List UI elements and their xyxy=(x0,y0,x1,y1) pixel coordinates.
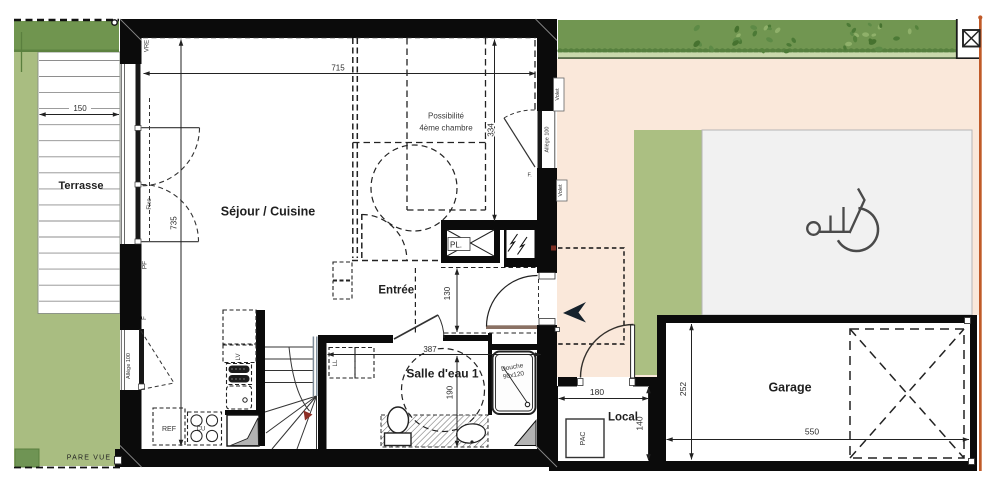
svg-text:Volet: Volet xyxy=(558,184,564,197)
svg-text:Allège 100: Allège 100 xyxy=(545,127,551,153)
svg-text:334: 334 xyxy=(487,123,496,137)
svg-text:Terrasse: Terrasse xyxy=(58,180,103,192)
svg-text:150: 150 xyxy=(73,104,87,113)
svg-text:Entrée: Entrée xyxy=(378,285,414,297)
svg-text:LL: LL xyxy=(333,359,339,366)
svg-text:550: 550 xyxy=(805,427,819,437)
svg-text:Fixe: Fixe xyxy=(147,198,153,210)
svg-text:CU: CU xyxy=(197,427,206,433)
svg-text:Garage: Garage xyxy=(768,381,811,395)
svg-text:Local: Local xyxy=(608,412,638,424)
svg-text:715: 715 xyxy=(331,64,345,73)
svg-text:Possibilité: Possibilité xyxy=(428,112,465,121)
svg-text:F.: F. xyxy=(528,173,533,179)
svg-text:LV: LV xyxy=(236,354,242,361)
svg-text:Volet: Volet xyxy=(555,88,561,101)
svg-text:387: 387 xyxy=(423,345,437,354)
svg-text:PAC: PAC xyxy=(580,432,587,446)
svg-text:735: 735 xyxy=(170,216,179,230)
svg-text:PL.: PL. xyxy=(450,241,462,250)
svg-text:PF: PF xyxy=(142,261,149,269)
svg-text:190: 190 xyxy=(446,385,455,399)
svg-text:252: 252 xyxy=(678,382,688,396)
svg-text:Allège 100: Allège 100 xyxy=(126,353,132,379)
svg-text:VRE: VRE xyxy=(145,40,151,52)
svg-text:Salle d'eau 1: Salle d'eau 1 xyxy=(406,367,479,381)
svg-text:Séjour / Cuisine: Séjour / Cuisine xyxy=(221,205,316,219)
svg-text:130: 130 xyxy=(443,286,452,300)
svg-text:REF: REF xyxy=(162,426,176,433)
svg-text:4ème chambre: 4ème chambre xyxy=(419,124,473,133)
svg-text:180: 180 xyxy=(590,387,604,397)
svg-text:PARE VUE: PARE VUE xyxy=(67,455,111,462)
svg-text:F: F xyxy=(142,316,148,320)
